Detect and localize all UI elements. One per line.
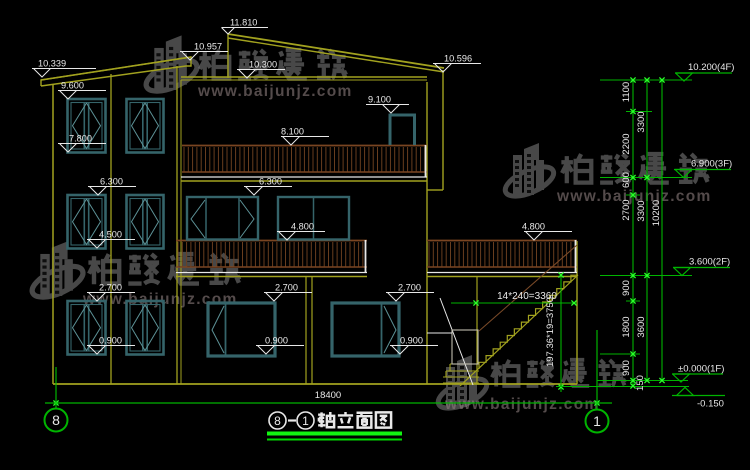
svg-text:2.700: 2.700 (99, 283, 122, 293)
svg-text:11.810: 11.810 (230, 18, 257, 28)
svg-text:6.900(3F): 6.900(3F) (691, 159, 732, 170)
svg-text:7.800: 7.800 (69, 134, 92, 144)
svg-text:3300: 3300 (636, 111, 647, 132)
svg-text:10.339: 10.339 (38, 59, 66, 69)
svg-text:www.baijunjz.com: www.baijunjz.com (444, 396, 600, 413)
svg-text:600: 600 (621, 172, 632, 188)
svg-text:900: 900 (621, 360, 632, 376)
svg-text:10.200(4F): 10.200(4F) (688, 62, 734, 73)
svg-text:2.700: 2.700 (398, 283, 421, 293)
svg-text:4.500: 4.500 (99, 230, 122, 240)
svg-text:10200: 10200 (651, 200, 662, 226)
svg-text:1800: 1800 (621, 316, 632, 337)
svg-text:8: 8 (274, 414, 281, 428)
svg-text:3.600(2F): 3.600(2F) (689, 257, 730, 268)
svg-text:8.100: 8.100 (281, 127, 304, 137)
svg-text:2200: 2200 (621, 133, 632, 154)
svg-text:-0.150: -0.150 (697, 399, 724, 410)
svg-text:±0.000(1F): ±0.000(1F) (678, 364, 724, 375)
svg-text:10.596: 10.596 (444, 54, 472, 64)
svg-text:197.36*19=3750: 197.36*19=3750 (545, 297, 556, 367)
svg-text:0.900: 0.900 (400, 336, 423, 346)
svg-text:150: 150 (635, 375, 646, 391)
svg-text:900: 900 (621, 280, 632, 296)
svg-text:2700: 2700 (621, 199, 632, 220)
svg-text:10.957: 10.957 (194, 42, 222, 52)
svg-text:3300: 3300 (636, 200, 647, 221)
svg-text:2.700: 2.700 (275, 283, 298, 293)
svg-text:18400: 18400 (315, 390, 341, 401)
svg-text:0.900: 0.900 (265, 336, 288, 346)
svg-text:1100: 1100 (621, 82, 632, 102)
svg-text:1: 1 (302, 414, 309, 428)
svg-text:4.800: 4.800 (291, 222, 314, 232)
svg-text:10.300: 10.300 (249, 60, 277, 70)
svg-text:4.800: 4.800 (522, 222, 545, 232)
svg-text:0.900: 0.900 (99, 336, 122, 346)
svg-text:6.300: 6.300 (259, 177, 282, 187)
svg-text:6.300: 6.300 (100, 177, 123, 187)
svg-text:www.baijunjz.com: www.baijunjz.com (197, 83, 353, 100)
svg-text:1: 1 (593, 413, 601, 429)
svg-text:8: 8 (52, 412, 60, 428)
svg-text:9.600: 9.600 (61, 81, 84, 91)
svg-text:3600: 3600 (636, 316, 647, 337)
svg-text:9.100: 9.100 (368, 95, 391, 105)
